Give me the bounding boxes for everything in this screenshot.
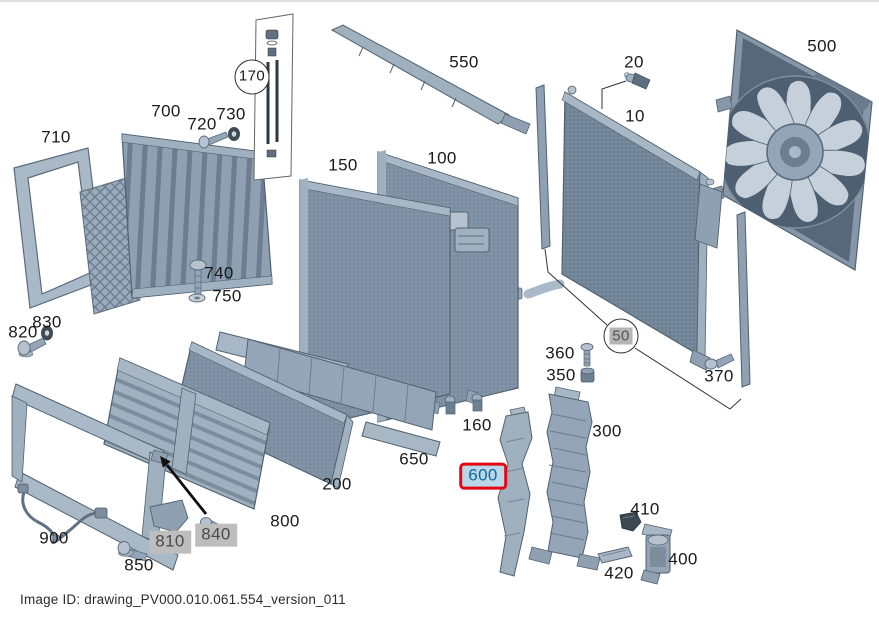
part-label-600[interactable]: 600 [459,463,507,490]
part-label-20[interactable]: 20 [624,54,644,73]
part-label-650[interactable]: 650 [399,451,429,470]
part-label-900[interactable]: 900 [39,530,69,549]
part-label-710[interactable]: 710 [41,129,71,148]
part-label-160[interactable]: 160 [462,417,492,436]
part-label-840[interactable]: 840 [195,524,237,547]
part-label-740[interactable]: 740 [204,265,234,284]
image-id-caption: Image ID: drawing_PV000.010.061.554_vers… [20,592,346,607]
part-label-360[interactable]: 360 [545,345,575,364]
part-label-chip-50: 50 [609,327,633,345]
part-label-800[interactable]: 800 [270,513,300,532]
part-label-700[interactable]: 700 [151,103,181,122]
part-label-370[interactable]: 370 [704,368,734,387]
part-labels-layer: 7107007207301705501501002010500740750830… [0,2,879,620]
part-label-170[interactable]: 170 [235,60,270,95]
part-label-150[interactable]: 150 [328,157,358,176]
parts-diagram-viewport: 7107007207301705501501002010500740750830… [0,0,879,620]
part-label-410[interactable]: 410 [630,501,660,520]
part-label-820[interactable]: 820 [8,324,38,343]
part-label-350[interactable]: 350 [546,367,576,386]
part-label-100[interactable]: 100 [427,150,457,169]
part-label-550[interactable]: 550 [449,54,479,73]
part-label-200[interactable]: 200 [322,476,352,495]
part-label-400[interactable]: 400 [668,551,698,570]
part-label-10[interactable]: 10 [625,108,645,127]
part-label-50[interactable]: 50 [604,319,639,354]
part-label-500[interactable]: 500 [807,38,837,57]
part-label-850[interactable]: 850 [124,557,154,576]
part-label-420[interactable]: 420 [604,565,634,584]
part-label-720[interactable]: 720 [187,116,217,135]
part-label-810[interactable]: 810 [149,531,191,554]
part-label-730[interactable]: 730 [216,106,246,125]
part-label-750[interactable]: 750 [212,288,242,307]
part-label-300[interactable]: 300 [592,423,622,442]
